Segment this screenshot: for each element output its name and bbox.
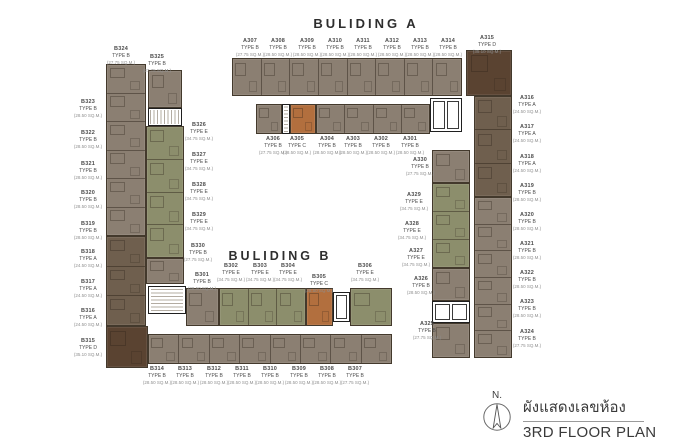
plan-title-block: ผังแสดงเลขห้อง 3RD FLOOR PLAN [523, 390, 656, 441]
unit-label-B323: B323TYPE B(28.50 SQ.M.) [66, 99, 110, 118]
unit-label-B317: B317TYPE A(24.50 SQ.M.) [66, 279, 110, 298]
unit-cell [107, 267, 145, 297]
unit-cell [376, 59, 405, 95]
unit-cell [317, 105, 345, 133]
elevator-core-a-wing [432, 301, 470, 323]
north-label: N. [492, 390, 502, 401]
unit-cell [107, 122, 145, 151]
unit-cell [345, 105, 373, 133]
lift-shaft [435, 304, 450, 320]
unit-label-B315: B315TYPE D(35.10 SQ.M.) [66, 338, 110, 357]
unit-cell [149, 71, 181, 107]
unit-label-A321: A321TYPE B(28.50 SQ.M.) [505, 241, 549, 260]
unit-label-B321: B321TYPE B(28.50 SQ.M.) [66, 161, 110, 180]
unit-label-A323: A323TYPE B(28.50 SQ.M.) [505, 299, 549, 318]
unit-cell [433, 212, 469, 240]
unit-a306-block [256, 104, 282, 134]
unit-label-B328: B328TYPE E(34.75 SQ.M.) [177, 182, 221, 201]
unit-b315-block [106, 326, 148, 368]
unit-label-A328: A328TYPE E(34.75 SQ.M.) [390, 221, 434, 240]
stair-hatch [150, 110, 180, 124]
unit-cell [351, 289, 391, 325]
footer-divider [523, 421, 644, 422]
unit-label-A329: A329TYPE E(34.75 SQ.M.) [392, 192, 436, 211]
unit-cell [402, 105, 429, 133]
unit-label-B318: B318TYPE A(24.50 SQ.M.) [66, 249, 110, 268]
unit-cell [187, 289, 218, 325]
elevator-core-b [333, 292, 350, 322]
unit-cell [233, 59, 262, 95]
unit-b305-block [306, 288, 333, 326]
unit-label-A317: A317TYPE A(24.50 SQ.M.) [505, 124, 549, 143]
unit-cell [107, 296, 145, 325]
unit-label-B319: B319TYPE B(28.50 SQ.M.) [66, 221, 110, 240]
unit-cell [433, 59, 461, 95]
lift-shaft [336, 295, 347, 319]
unit-cell [149, 335, 179, 363]
unit-label-A318: A318TYPE A(24.50 SQ.M.) [505, 154, 549, 173]
unit-label-A325: A325TYPE B(27.75 SQ.M.) [405, 321, 449, 340]
unit-cell [107, 327, 147, 367]
unit-cell [433, 184, 469, 212]
unit-label-B330: B330TYPE B(27.75 SQ.M.) [176, 243, 220, 262]
unit-label-B322: B322TYPE B(28.50 SQ.M.) [66, 130, 110, 149]
plan-footer: N. ผังแสดงเลขห้อง 3RD FLOOR PLAN [480, 390, 656, 441]
unit-cell [107, 237, 145, 267]
unit-label-A330: A330TYPE B(27.75 SQ.M.) [398, 157, 442, 176]
unit-label-A316: A316TYPE A(24.50 SQ.M.) [505, 95, 549, 114]
unit-cell [107, 151, 145, 180]
unit-cell [262, 59, 291, 95]
unit-label-A319: A319TYPE B(28.50 SQ.M.) [505, 183, 549, 202]
unit-label-A320: A320TYPE B(28.50 SQ.M.) [505, 212, 549, 231]
unit-b325-block [148, 70, 182, 108]
unit-cell [240, 335, 270, 363]
unit-b306-block [350, 288, 392, 326]
bottom-upper-green [219, 288, 306, 326]
stair-hatch [284, 106, 288, 132]
unit-cell [405, 59, 434, 95]
elevator-core-a [430, 98, 462, 132]
unit-cell [271, 335, 301, 363]
building-a-title: BULIDING A [286, 16, 446, 31]
stair-core-a-mid [282, 104, 290, 134]
unit-label-B307: B307TYPE B(27.75 SQ.M.) [333, 366, 377, 385]
lift-shaft [433, 101, 445, 129]
unit-label-A322: A322TYPE B(28.50 SQ.M.) [505, 270, 549, 289]
unit-cell [257, 105, 281, 133]
unit-label-A314: A314TYPE B(28.50 SQ.M.) [426, 38, 470, 57]
compass-icon [481, 401, 513, 433]
unit-cell [249, 289, 278, 325]
unit-cell [107, 208, 145, 236]
unit-cell [147, 259, 183, 283]
wing-b-outer-lower [106, 236, 146, 326]
unit-label-B325: B325TYPE B(27.75 SQ.M.) [135, 54, 179, 73]
unit-label-A326: A326TYPE B(28.50 SQ.M.) [399, 276, 443, 295]
unit-label-A327: A327TYPE E(34.75 SQ.M.) [394, 248, 438, 267]
unit-cell [348, 59, 377, 95]
unit-cell [220, 289, 249, 325]
unit-cell [374, 105, 402, 133]
building-a-inner-row [316, 104, 430, 134]
unit-label-A315: A315TYPE D(35.10 SQ.M.) [465, 35, 509, 54]
unit-cell [107, 94, 145, 123]
unit-label-B316: B316TYPE A(24.50 SQ.M.) [66, 308, 110, 327]
north-indicator: N. [480, 390, 514, 433]
unit-cell [179, 335, 209, 363]
building-b-title: BULIDING B [200, 249, 360, 263]
unit-cell [307, 289, 332, 325]
bottom-lower-row [148, 334, 392, 364]
unit-cell [291, 105, 315, 133]
unit-cell [290, 59, 319, 95]
unit-cell [362, 335, 391, 363]
stair-hatch [151, 289, 183, 311]
unit-label-B306: B306TYPE E(34.75 SQ.M.) [343, 263, 387, 282]
unit-cell [210, 335, 240, 363]
wing-b-outer-upper [106, 64, 146, 236]
unit-label-B320: B320TYPE B(28.50 SQ.M.) [66, 190, 110, 209]
unit-cell [331, 335, 361, 363]
unit-cell [107, 179, 145, 208]
unit-label-A324: A324TYPE B(27.75 SQ.M.) [505, 329, 549, 348]
lift-shaft [452, 304, 467, 320]
building-a-top-bar [232, 58, 462, 96]
unit-cell [467, 51, 511, 95]
unit-cell [301, 335, 331, 363]
plan-title-thai: ผังแสดงเลขห้อง [523, 395, 656, 419]
lift-shaft [447, 101, 459, 129]
floor-plan-canvas: BULIDING A BULIDING B N. [0, 0, 680, 442]
unit-cell [433, 240, 469, 267]
unit-label-B329: B329TYPE E(34.75 SQ.M.) [177, 212, 221, 231]
unit-b301-block [186, 288, 219, 326]
unit-a315-block [466, 50, 512, 96]
unit-cell [319, 59, 348, 95]
unit-label-A301: A301TYPE B(28.50 SQ.M.) [388, 136, 432, 155]
plan-title-en: 3RD FLOOR PLAN [523, 424, 656, 441]
unit-a305-block [290, 104, 316, 134]
unit-label-B326: B326TYPE E(34.75 SQ.M.) [177, 122, 221, 141]
unit-cell [277, 289, 305, 325]
unit-label-B305: B305TYPE C(28.50 SQ.M.) [297, 274, 341, 293]
unit-label-B327: B327TYPE E(34.75 SQ.M.) [177, 152, 221, 171]
